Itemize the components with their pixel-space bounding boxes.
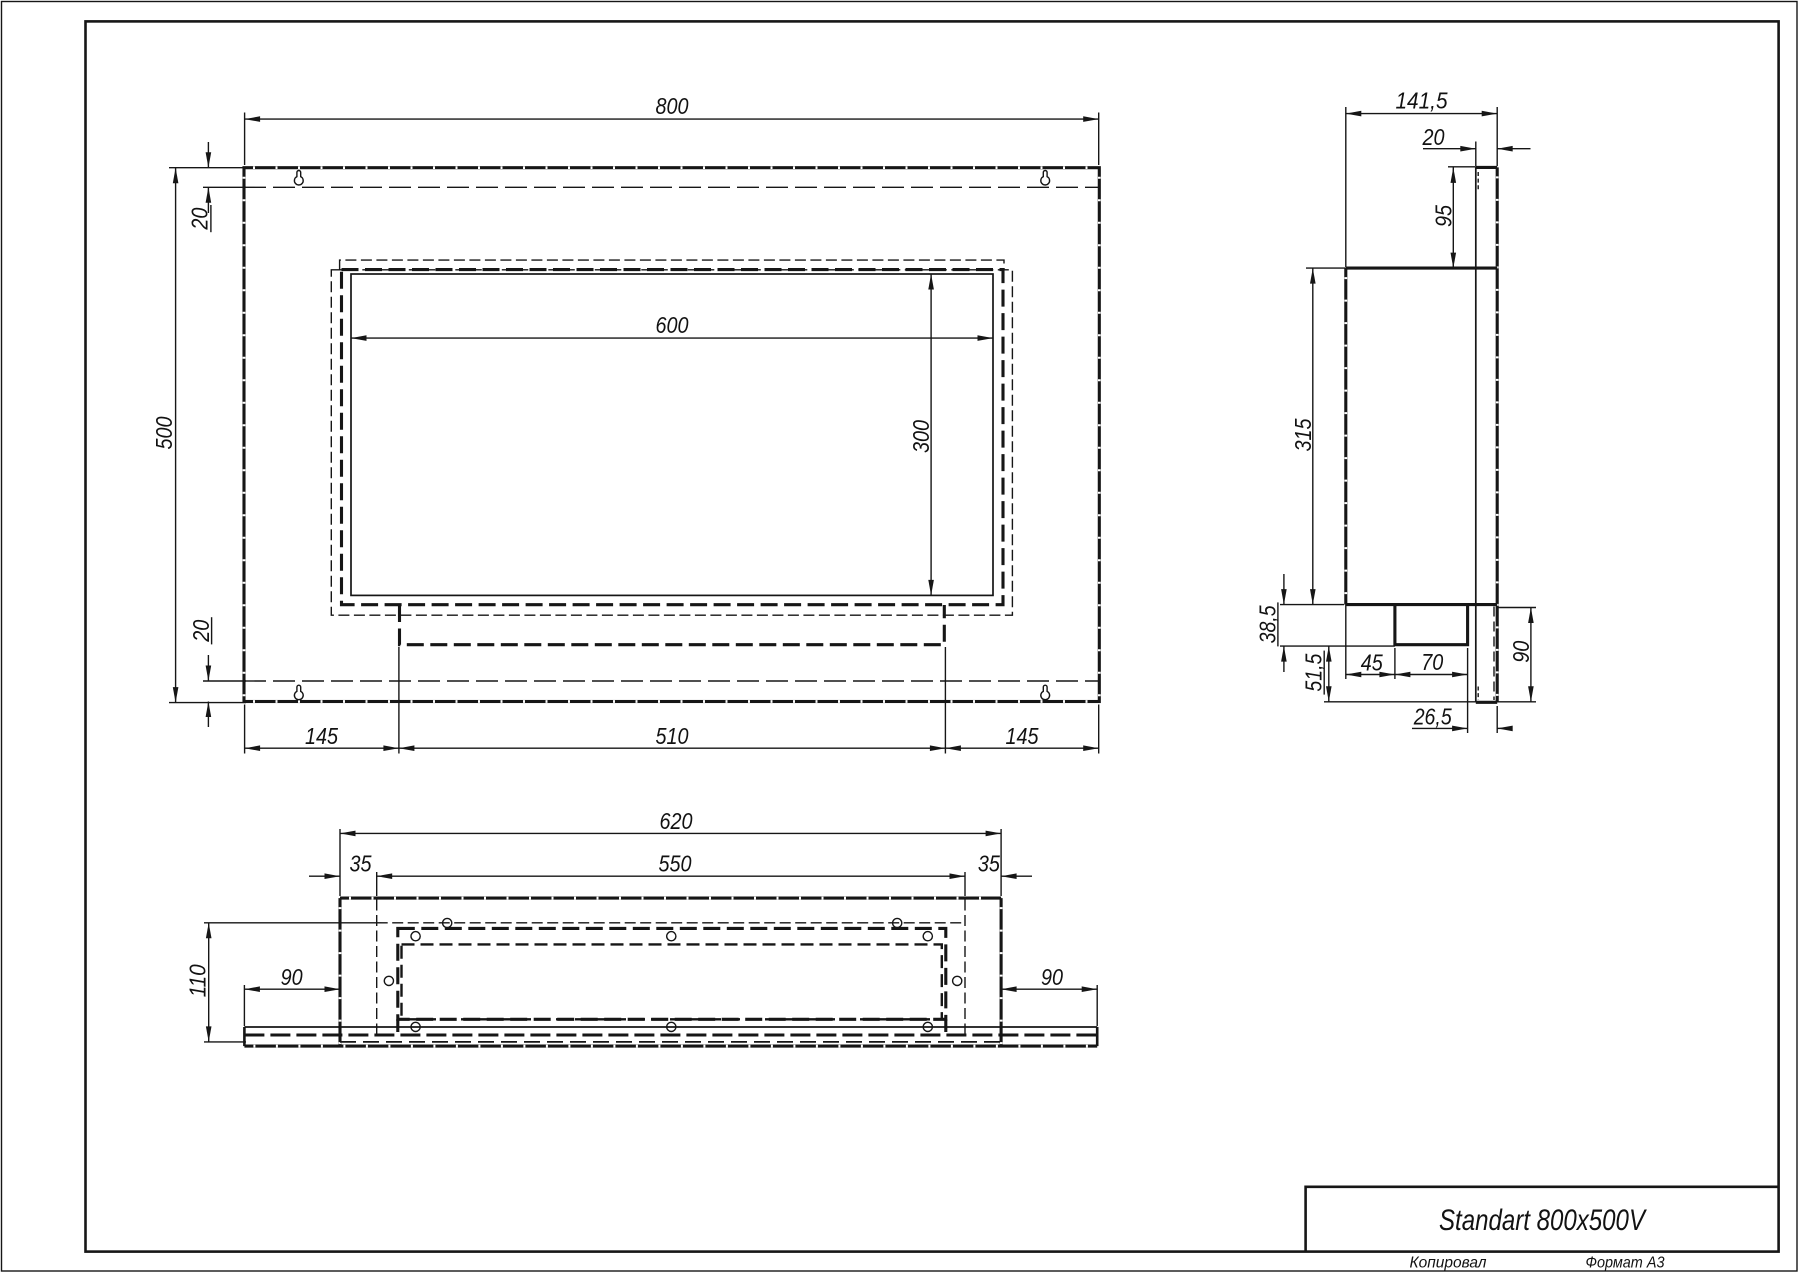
svg-text:35: 35 [350,850,373,876]
svg-text:Копировал: Копировал [1410,1255,1487,1272]
svg-text:20: 20 [188,620,214,643]
svg-text:20: 20 [1422,124,1445,150]
svg-text:550: 550 [659,851,692,877]
svg-text:300: 300 [908,420,934,453]
svg-text:70: 70 [1421,649,1443,675]
svg-text:95: 95 [1430,204,1456,227]
svg-text:141,5: 141,5 [1396,88,1449,114]
svg-text:20: 20 [186,208,212,231]
svg-text:315: 315 [1290,418,1316,452]
svg-text:Standart 800x500V: Standart 800x500V [1439,1204,1647,1237]
svg-text:110: 110 [185,964,211,997]
svg-text:510: 510 [656,723,689,749]
svg-text:145: 145 [1006,723,1040,749]
svg-text:500: 500 [151,417,177,450]
svg-text:145: 145 [305,723,339,749]
svg-text:620: 620 [660,808,693,834]
svg-text:45: 45 [1361,650,1384,676]
svg-text:35: 35 [978,850,1001,876]
svg-text:51,5: 51,5 [1301,653,1327,692]
svg-text:Формат А3: Формат А3 [1586,1255,1665,1272]
svg-text:600: 600 [656,312,689,338]
svg-text:90: 90 [281,964,303,990]
svg-text:38,5: 38,5 [1254,605,1280,644]
svg-text:90: 90 [1508,641,1534,663]
svg-text:26,5: 26,5 [1413,704,1453,730]
svg-text:90: 90 [1041,964,1063,990]
svg-text:800: 800 [656,93,689,119]
